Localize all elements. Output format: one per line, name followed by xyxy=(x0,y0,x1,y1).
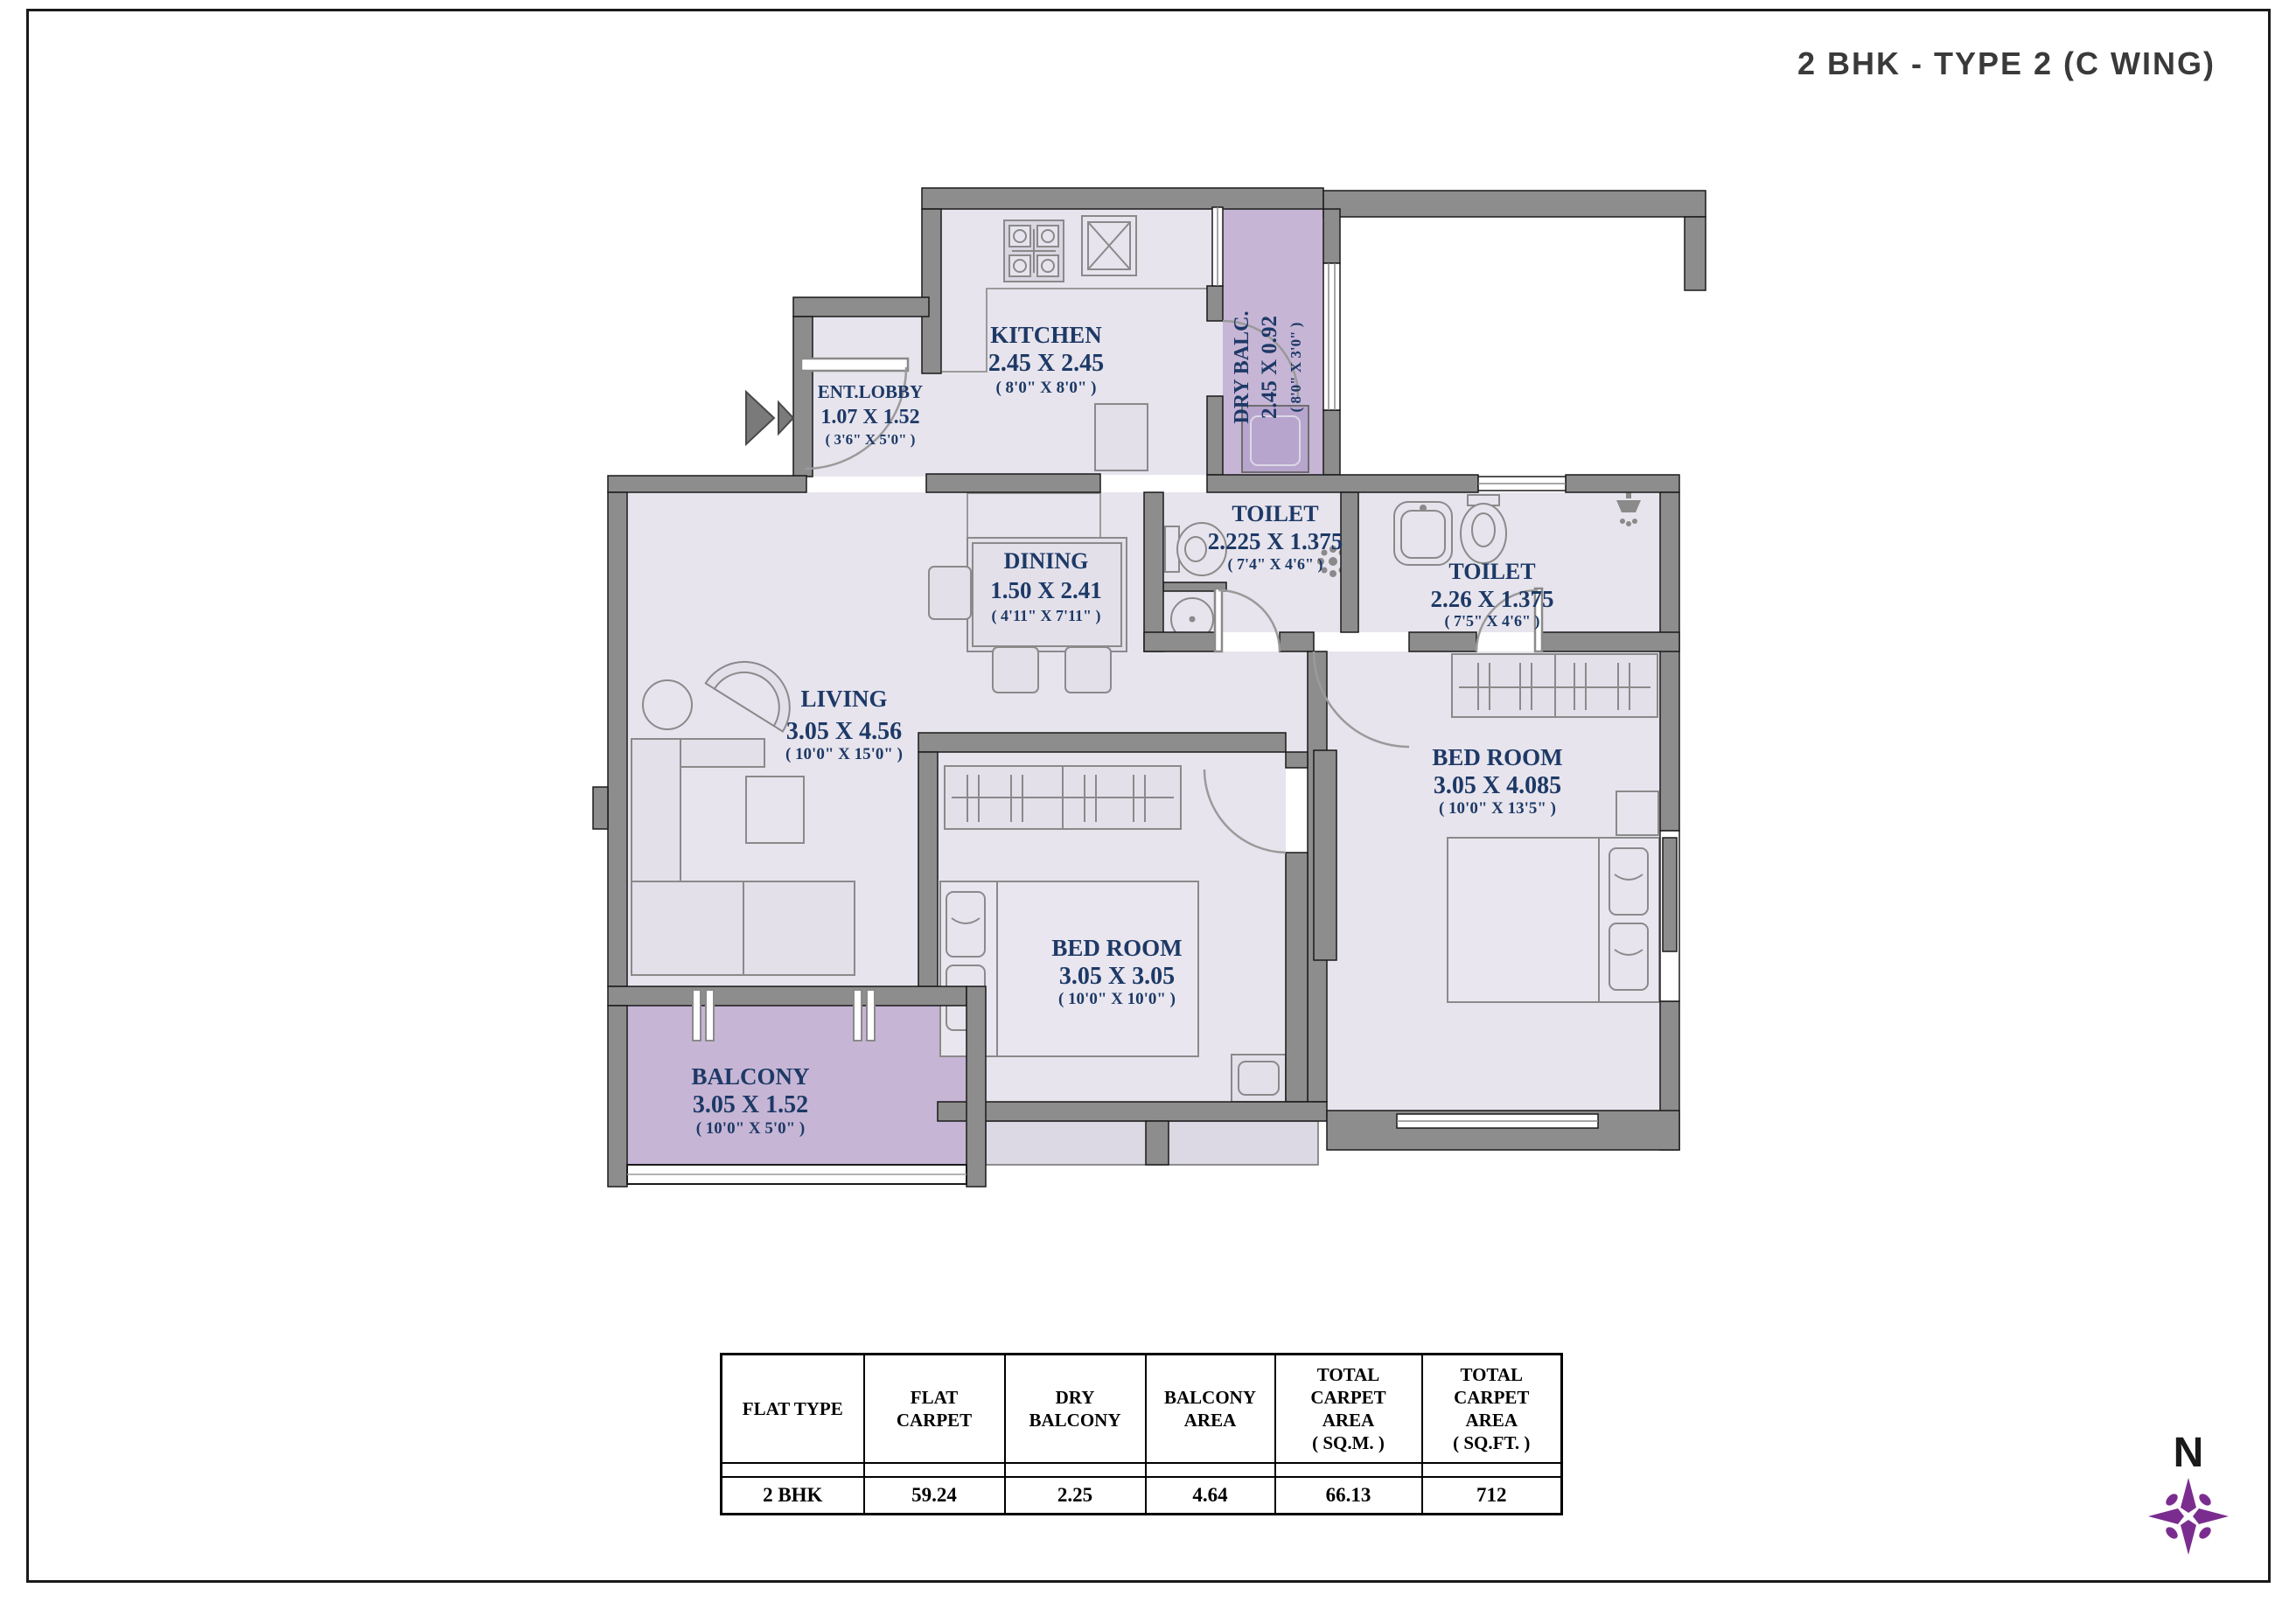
balcony-railing xyxy=(627,1165,967,1184)
flat-area-table: FLAT TYPE FLAT CARPET DRY BALCONY BALCON… xyxy=(720,1353,1563,1515)
entry-arrow-icon xyxy=(746,392,793,444)
room-label-ent-lobby: ENT.LOBBY 1.07 X 1.52 ( 3'6" X 5'0" ) xyxy=(818,381,923,448)
svg-text:BED ROOM: BED ROOM xyxy=(1432,744,1562,770)
sliding-window xyxy=(1660,831,1679,1001)
svg-text:2.225 X 1.375: 2.225 X 1.375 xyxy=(1208,528,1343,554)
svg-text:DRY BALC.: DRY BALC. xyxy=(1231,311,1253,424)
svg-text:ENT.LOBBY: ENT.LOBBY xyxy=(818,381,923,402)
table-cell-balcony-area: 4.64 xyxy=(1146,1477,1275,1515)
window xyxy=(1478,477,1566,491)
kitchen-sink-icon xyxy=(1082,216,1136,275)
room-label-bedroom-2: BED ROOM 3.05 X 3.05 ( 10'0" X 10'0" ) xyxy=(1051,935,1182,1008)
compass-star-icon xyxy=(2145,1474,2232,1558)
room-label-toilet-2: TOILET 2.26 X 1.375 ( 7'5" X 4'6" ) xyxy=(1431,559,1554,630)
compass-north-label: N xyxy=(2145,1432,2232,1474)
svg-text:( 10'0" X 10'0" ): ( 10'0" X 10'0" ) xyxy=(1058,990,1176,1008)
svg-text:3.05 X 4.085: 3.05 X 4.085 xyxy=(1434,772,1561,799)
svg-text:( 7'4" X 4'6" ): ( 7'4" X 4'6" ) xyxy=(1228,555,1323,574)
room-label-bedroom-master: BED ROOM 3.05 X 4.085 ( 10'0" X 13'5" ) xyxy=(1432,744,1562,818)
svg-text:( 7'5" X 4'6" ): ( 7'5" X 4'6" ) xyxy=(1445,612,1540,630)
room-label-balcony: BALCONY 3.05 X 1.52 ( 10'0" X 5'0" ) xyxy=(691,1063,809,1138)
wc-icon xyxy=(1461,495,1506,563)
svg-text:3.05 X 3.05: 3.05 X 3.05 xyxy=(1059,963,1175,990)
table-header-cell: TOTAL CARPET AREA ( SQ.M. ) xyxy=(1275,1355,1422,1464)
desk-chair-icon xyxy=(1232,1055,1286,1102)
table-header-cell: FLAT CARPET xyxy=(864,1355,1005,1464)
svg-text:BALCONY: BALCONY xyxy=(691,1063,809,1090)
table-header-cell: FLAT TYPE xyxy=(722,1355,864,1464)
table-header-cell: TOTAL CARPET AREA ( SQ.FT. ) xyxy=(1422,1355,1562,1464)
svg-text:TOILET: TOILET xyxy=(1232,501,1318,526)
svg-text:( 8'0" X 3'0" ): ( 8'0" X 3'0" ) xyxy=(1288,323,1304,413)
table-spacer-row xyxy=(722,1463,1562,1477)
svg-text:( 10'0" X 5'0" ): ( 10'0" X 5'0" ) xyxy=(696,1119,806,1138)
svg-text:2.45 X 2.45: 2.45 X 2.45 xyxy=(988,350,1104,377)
table-cell-dry-balcony: 2.25 xyxy=(1005,1477,1146,1515)
svg-text:( 3'6" X 5'0" ): ( 3'6" X 5'0" ) xyxy=(826,431,916,448)
svg-text:( 10'0" X 13'5" ): ( 10'0" X 13'5" ) xyxy=(1439,799,1556,818)
wardrobe-icon xyxy=(1452,654,1657,717)
svg-text:1.50 X 2.41: 1.50 X 2.41 xyxy=(990,577,1102,603)
svg-text:( 4'11" X 7'11" ): ( 4'11" X 7'11" ) xyxy=(992,607,1101,625)
floor-plan-page: 2 BHK - TYPE 2 (C WING) xyxy=(0,0,2296,1609)
window xyxy=(1212,207,1223,286)
svg-text:2.26 X 1.375: 2.26 X 1.375 xyxy=(1431,586,1554,612)
svg-text:3.05 X 4.56: 3.05 X 4.56 xyxy=(786,718,902,745)
room-label-dining: DINING 1.50 X 2.41 ( 4'11" X 7'11" ) xyxy=(990,548,1102,625)
table-cell-flat-type: 2 BHK xyxy=(722,1477,864,1515)
table-cell-flat-carpet: 59.24 xyxy=(864,1477,1005,1515)
bed-icon xyxy=(1448,838,1659,1002)
stove-icon xyxy=(1004,220,1064,282)
svg-text:TOILET: TOILET xyxy=(1448,559,1535,584)
table-header-cell: BALCONY AREA xyxy=(1146,1355,1275,1464)
table-cell-total-sqm: 66.13 xyxy=(1275,1477,1422,1515)
svg-text:( 10'0" X 15'0" ): ( 10'0" X 15'0" ) xyxy=(785,745,903,763)
svg-text:KITCHEN: KITCHEN xyxy=(990,322,1102,348)
svg-text:3.05 X 1.52: 3.05 X 1.52 xyxy=(693,1091,808,1118)
svg-text:DINING: DINING xyxy=(1004,548,1089,574)
room-label-dry-balcony: DRY BALC. 2.45 X 0.92 ( 8'0" X 3'0" ) xyxy=(1231,311,1304,424)
svg-text:1.07 X 1.52: 1.07 X 1.52 xyxy=(820,406,919,428)
table-data-row: 2 BHK 59.24 2.25 4.64 66.13 712 xyxy=(722,1477,1562,1515)
table-header-row: FLAT TYPE FLAT CARPET DRY BALCONY BALCON… xyxy=(722,1355,1562,1464)
wash-basin-icon xyxy=(1394,502,1452,565)
wardrobe-icon xyxy=(945,766,1181,829)
window xyxy=(1323,263,1340,410)
table-header-cell: DRY BALCONY xyxy=(1005,1355,1146,1464)
table-cell-total-sqft: 712 xyxy=(1422,1477,1562,1515)
svg-text:LIVING: LIVING xyxy=(800,686,887,712)
svg-text:BED ROOM: BED ROOM xyxy=(1051,935,1182,961)
room-label-kitchen: KITCHEN 2.45 X 2.45 ( 8'0" X 8'0" ) xyxy=(988,322,1104,397)
window xyxy=(1397,1114,1598,1128)
room-label-living: LIVING 3.05 X 4.56 ( 10'0" X 15'0" ) xyxy=(785,686,903,763)
svg-text:2.45 X 0.92: 2.45 X 0.92 xyxy=(1258,316,1281,419)
compass: N xyxy=(2145,1432,2232,1563)
svg-text:( 8'0" X 8'0" ): ( 8'0" X 8'0" ) xyxy=(995,379,1096,397)
